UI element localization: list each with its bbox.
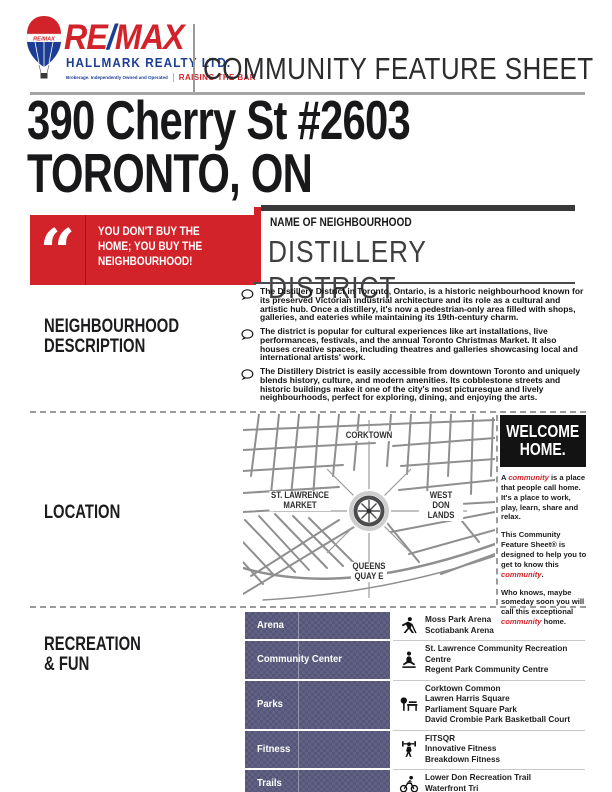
community-feature-sheet-page: RE/MAX RE/MAX HALLMARK REALTY LTD. Broke…: [0, 0, 612, 792]
recreation-row: ArenaMoss Park ArenaScotiabank Arena: [245, 612, 585, 641]
quote-box: “ YOU DON'T BUY THE HOME; YOU BUY THE NE…: [30, 215, 256, 285]
meditation-icon: [393, 650, 425, 670]
category-cell: Parks: [245, 681, 390, 731]
category-cell: Arena: [245, 612, 390, 641]
neighbourhood-underline: [254, 282, 575, 284]
neighbourhood-top-bar: [261, 205, 575, 211]
venue-cell: Corktown CommonLawren Harris SquareParli…: [393, 681, 585, 731]
wordmark-re: RE: [64, 18, 107, 57]
hockey-player-icon: [393, 616, 425, 636]
quote-text: YOU DON'T BUY THE HOME; YOU BUY THE NEIG…: [86, 215, 256, 285]
venue-item: Regent Park Community Centre: [425, 665, 585, 676]
quote-text-lines: YOU DON'T BUY THE HOME; YOU BUY THE NEIG…: [98, 225, 202, 271]
description-paragraph: The Distillery District in Toronto, Onta…: [240, 287, 586, 322]
recreation-table: ArenaMoss Park ArenaScotiabank ArenaComm…: [245, 612, 585, 792]
location-map: CORKTOWN ST. LAWRENCE MARKET WEST DON LA…: [243, 414, 495, 604]
recreation-row: ParksCorktown CommonLawren Harris Square…: [245, 681, 585, 731]
brokerage-fineprint: Brokerage. Independently Owned and Opera…: [66, 75, 168, 80]
category-cell: Fitness: [245, 731, 390, 771]
venue-item: St. Lawrence Community Recreation Centre: [425, 644, 585, 665]
sheet-title: COMMUNITY FEATURE SHEET®: [203, 50, 612, 87]
speech-bubble-icon: [240, 328, 254, 340]
park-bench-icon: [393, 695, 425, 715]
venue-cell: Moss Park ArenaScotiabank Arena: [393, 612, 585, 641]
sheet-title-text: COMMUNITY FEATURE SHEET: [203, 51, 594, 87]
section-divider-dashed-2: [30, 606, 586, 608]
welcome-paragraph: A community is a place that people call …: [501, 473, 587, 522]
venue-item: Corktown Common: [425, 684, 585, 695]
remax-balloon-logo: RE/MAX: [24, 15, 64, 81]
venue-item: Scotiabank Arena: [425, 626, 585, 637]
category-label: Community Center: [257, 654, 342, 665]
recreation-row: TrailsLower Don Recreation TrailWaterfro…: [245, 770, 585, 792]
map-label-st-lawrence-market: ST. LAWRENCE MARKET: [269, 491, 330, 511]
address-line-1: 390 Cherry St #2603: [27, 94, 410, 147]
welcome-home-title: WELCOME HOME.: [506, 423, 579, 459]
welcome-divider-dashed: [496, 415, 498, 605]
map-label-west-don-lands: WEST DON LANDS: [419, 491, 463, 521]
map-label-corktown: CORKTOWN: [344, 431, 394, 441]
venue-item: Breakdown Fitness: [425, 755, 585, 766]
venue-cell: St. Lawrence Community Recreation Centre…: [393, 641, 585, 681]
welcome-paragraphs: A community is a place that people call …: [501, 473, 587, 635]
community-accent-text: community: [501, 570, 542, 579]
description-text: The Distillery District in Toronto, Onta…: [260, 287, 586, 322]
category-label: Trails: [257, 778, 282, 789]
cyclist-icon: [393, 774, 425, 792]
venue-list: Corktown CommonLawren Harris SquareParli…: [425, 684, 585, 726]
section-label-description: NEIGHBOURHOOD DESCRIPTION: [44, 316, 222, 357]
section-label-location: LOCATION: [44, 502, 144, 522]
speech-bubble-icon: [240, 368, 254, 380]
venue-item: Lawren Harris Square: [425, 694, 585, 705]
quote-mark-cell: “: [30, 215, 86, 285]
venue-item: Parliament Square Park: [425, 705, 585, 716]
category-cell: Trails: [245, 770, 390, 792]
venue-item: Lower Don Recreation Trail: [425, 773, 585, 784]
description-text: The district is popular for cultural exp…: [260, 327, 586, 362]
venue-list: Moss Park ArenaScotiabank Arena: [425, 615, 585, 636]
venue-list: FITSQRInnovative FitnessBreakdown Fitnes…: [425, 734, 585, 766]
section-divider-dashed: [30, 411, 586, 413]
welcome-text-segment: This Community Feature Sheet® is designe…: [501, 530, 586, 569]
welcome-paragraph: This Community Feature Sheet® is designe…: [501, 530, 587, 579]
welcome-home-box: WELCOME HOME.: [500, 415, 586, 467]
quote-mark-icon: “: [40, 221, 76, 285]
address-line-2: TORONTO, ON: [27, 147, 410, 200]
venue-cell: FITSQRInnovative FitnessBreakdown Fitnes…: [393, 731, 585, 771]
venue-item: Moss Park Arena: [425, 615, 585, 626]
description-paragraphs: The Distillery District in Toronto, Onta…: [240, 287, 586, 407]
venue-item: FITSQR: [425, 734, 585, 745]
location-label-text: LOCATION: [44, 502, 120, 522]
category-label: Fitness: [257, 744, 290, 755]
remax-wordmark: RE/MAX: [64, 18, 184, 58]
balloon-wordmark: RE/MAX: [33, 36, 56, 42]
venue-list: St. Lawrence Community Recreation Centre…: [425, 644, 585, 676]
category-cell: Community Center: [245, 641, 390, 681]
community-accent-text: community: [508, 473, 549, 482]
property-address: 390 Cherry St #2603 TORONTO, ON: [27, 94, 531, 201]
venue-cell: Lower Don Recreation TrailWaterfront Tri: [393, 770, 585, 792]
speech-bubble-icon: [240, 288, 254, 300]
description-paragraph: The Distillery District is easily access…: [240, 367, 586, 402]
welcome-text-segment: .: [542, 570, 544, 579]
venue-list: Lower Don Recreation TrailWaterfront Tri: [425, 773, 585, 792]
recreation-row: FitnessFITSQRInnovative FitnessBreakdown…: [245, 731, 585, 771]
header-divider: [193, 24, 195, 92]
category-label: Parks: [257, 699, 283, 710]
neighbourhood-red-stripe: [254, 207, 261, 284]
weightlifter-icon: [393, 739, 425, 759]
description-paragraph: The district is popular for cultural exp…: [240, 327, 586, 362]
recreation-row: Community CenterSt. Lawrence Community R…: [245, 641, 585, 681]
neighbourhood-label-text: NAME OF NEIGHBOURHOOD: [270, 217, 412, 229]
description-text: The Distillery District is easily access…: [260, 367, 586, 402]
recreation-label-text: RECREATION & FUN: [44, 634, 141, 675]
venue-item: Innovative Fitness: [425, 744, 585, 755]
description-label-text: NEIGHBOURHOOD DESCRIPTION: [44, 316, 179, 357]
wordmark-max: MAX: [115, 18, 184, 57]
map-label-queens-quay-e: QUEENS QUAY E: [351, 562, 387, 582]
venue-item: David Crombie Park Basketball Court: [425, 715, 585, 726]
venue-item: Waterfront Tri: [425, 784, 585, 792]
neighbourhood-name-label: NAME OF NEIGHBOURHOOD: [270, 217, 431, 229]
compass-rose-icon: [347, 489, 391, 533]
section-label-recreation: RECREATION & FUN: [44, 634, 171, 675]
category-label: Arena: [257, 620, 284, 631]
